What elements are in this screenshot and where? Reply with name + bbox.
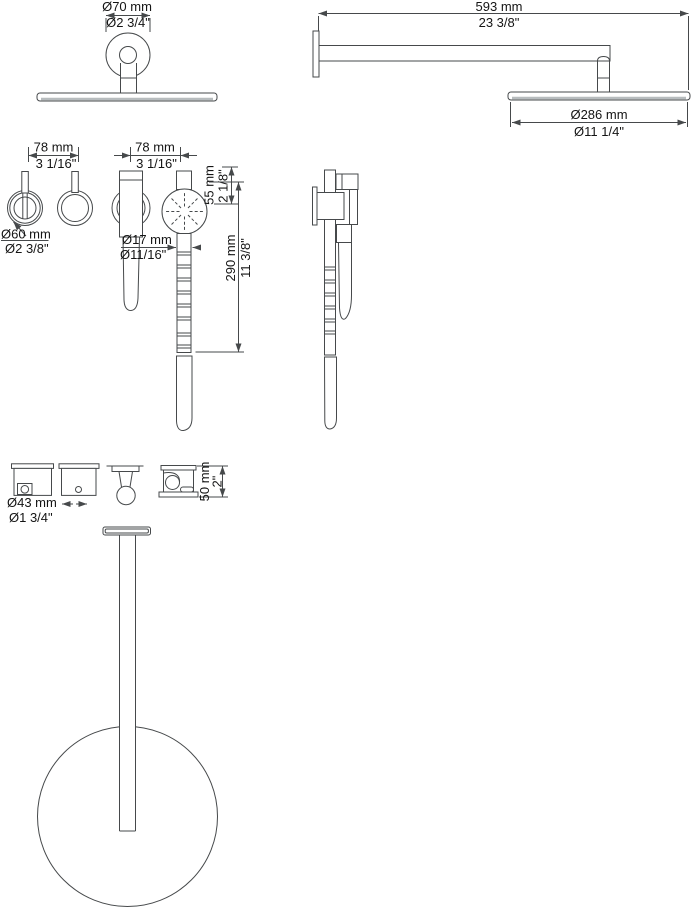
valve-lever-handle	[22, 172, 29, 194]
bracket-base	[159, 492, 198, 497]
valve-escutcheon-front	[8, 191, 43, 226]
dim-label-valve-proj-mm: 78 mm	[34, 140, 74, 155]
dim-label-trim-dia-mm: Ø43 mm	[7, 495, 57, 510]
wall-plate	[313, 187, 318, 225]
valve-escutcheon-side	[58, 191, 93, 226]
figure-valve-trims: 78 mm 3 1/16" Ø60 mm Ø2 3/8"	[1, 140, 93, 257]
knob-stem	[119, 472, 133, 488]
dim-label-valve-proj-in: 3 1/16"	[36, 156, 77, 171]
dim-label-hs-proj-mm: 78 mm	[135, 140, 175, 155]
hand-shower-handle	[177, 234, 191, 353]
figure-top-views: Ø43 mm Ø1 3/4" 50 mm 2"	[7, 462, 228, 525]
dim-label-valve-dia-in: Ø2 3/8"	[5, 241, 49, 256]
technical-drawing-shower-system: Ø70 mm Ø2 3/4" 593 mm 23 3/8" Ø286 mm Ø1…	[0, 0, 693, 910]
dim-label-hs-length-in: 11 3/8"	[238, 238, 253, 278]
bracket-pad	[181, 487, 194, 492]
dim-label-head-dia-in: Ø11 1/4"	[574, 124, 624, 139]
dim-label-handle-dia-in: Ø11/16"	[120, 247, 167, 262]
figure-shower-arm-side: 593 mm 23 3/8" Ø286 mm Ø11 1/4"	[313, 0, 690, 139]
figure-overhead-shower-front: Ø70 mm Ø2 3/4"	[37, 0, 217, 101]
trim-b-flange	[59, 464, 99, 469]
bracket-block	[317, 193, 344, 220]
figure-ceiling-shower-plan	[38, 527, 218, 907]
valve-hub	[14, 197, 36, 219]
hose-connector	[337, 225, 352, 243]
shower-arm	[319, 46, 610, 62]
dim-label-arm-length-mm: 593 mm	[476, 0, 523, 14]
dim-label-handle-dia-mm: Ø17 mm	[122, 232, 172, 247]
dim-label-valve-dia-mm: Ø60 mm	[1, 227, 51, 242]
figure-hand-shower-bracket-side	[313, 170, 359, 429]
bracket-back	[350, 190, 358, 225]
hand-shower-head-profile	[336, 174, 358, 190]
dim-label-head-dia-mm: Ø286 mm	[570, 107, 627, 122]
bracket-post	[166, 476, 180, 490]
head-connector	[598, 61, 610, 92]
dim-label-overhead-front-mm: Ø70 mm	[102, 0, 152, 14]
dim-label-hs-length-mm: 290 mm	[223, 235, 238, 282]
knob	[117, 486, 135, 504]
dim-label-bracket-depth-in: 2"	[210, 475, 225, 487]
valve-lever-handle-side	[72, 172, 79, 193]
dim-label-arm-length-in: 23 3/8"	[479, 15, 520, 30]
figure-hand-shower: 78 mm 3 1/16" 55 mm 2 1/8" Ø17 mm Ø11/16…	[112, 140, 253, 431]
bracket-flange-top	[161, 466, 196, 471]
dim-label-hs-proj-in: 3 1/16"	[136, 156, 177, 171]
hand-shower-body-side	[120, 171, 143, 237]
stem-connection	[120, 47, 137, 64]
wall-flange	[313, 31, 319, 77]
dim-label-hs-head-mm: 55 mm	[202, 165, 217, 205]
dim-label-trim-dia-in: Ø1 3/4"	[9, 510, 53, 525]
trim-b-body	[62, 468, 97, 495]
hose-lower	[325, 357, 337, 429]
dim-label-overhead-front-in: Ø2 3/4"	[106, 15, 150, 30]
trim-a-flange	[12, 464, 54, 469]
hose-upper	[339, 243, 352, 320]
dim-label-hs-head-in: 2 1/8"	[216, 169, 231, 203]
ceiling-flange	[103, 527, 151, 535]
hose-front	[177, 356, 193, 431]
knob-flange	[112, 466, 139, 472]
hand-shower-top-handle	[177, 171, 192, 190]
ceiling-pipe-fill	[120, 535, 135, 831]
